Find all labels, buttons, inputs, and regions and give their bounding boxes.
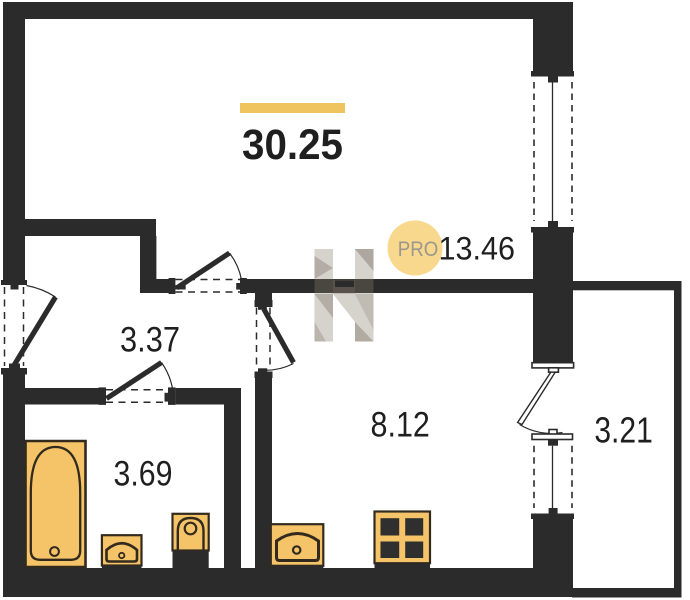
svg-text:3.69: 3.69 [114, 455, 173, 494]
svg-text:8.12: 8.12 [371, 405, 430, 445]
svg-text:13.46: 13.46 [439, 230, 516, 266]
svg-text:30.25: 30.25 [242, 122, 343, 169]
svg-text:3.21: 3.21 [594, 409, 653, 450]
svg-text:3.37: 3.37 [120, 320, 180, 360]
svg-text:PRO: PRO [398, 238, 439, 261]
